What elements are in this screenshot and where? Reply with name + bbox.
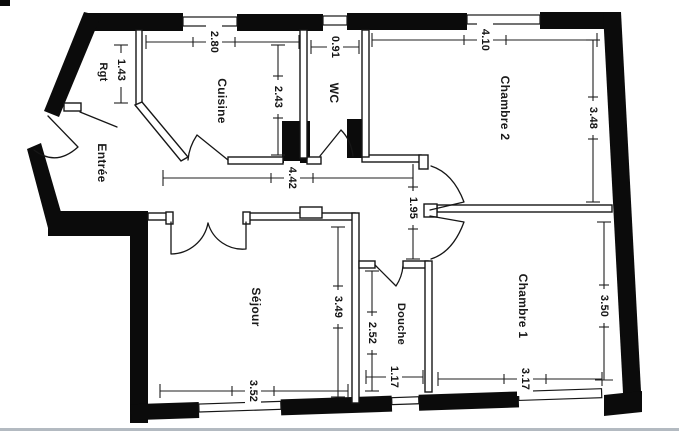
- wall-cuisine-diagonal: [135, 102, 188, 161]
- scan-edge-line: [0, 428, 679, 431]
- wall-corridor-top-1: [228, 157, 283, 164]
- dimension-label-3-50: 3.50: [598, 295, 610, 317]
- door-cuisine: [188, 135, 228, 160]
- dimension-label-3-49: 3.49: [332, 296, 344, 318]
- window-sejour: [199, 401, 281, 412]
- wall-wc-bottom-stub: [307, 157, 321, 164]
- room-label-chambre1: Chambre 1: [516, 274, 530, 339]
- wall-jamb-chambre2: [419, 155, 428, 169]
- wall-bottom-1: [131, 402, 199, 420]
- flue-block-wc: [347, 119, 362, 158]
- room-labels: Rgt Cuisine WC Chambre 2 Entrée Séjour D…: [95, 62, 530, 345]
- door-sejour-left: [171, 222, 208, 254]
- dimension-1-95: 1.95: [405, 165, 421, 259]
- wall-sejour-right: [352, 213, 359, 403]
- dimension-label-1-43: 1.43: [115, 59, 127, 81]
- door-sejour-right: [208, 222, 246, 249]
- dimension-label-4-42: 4.42: [286, 167, 298, 189]
- door-douche: [375, 265, 403, 286]
- wall-douche-top-left: [359, 261, 375, 268]
- dimension-label-3-17: 3.17: [519, 368, 531, 390]
- wall-rgt-bottom-stub: [64, 103, 81, 111]
- wall-douche-top-right: [403, 261, 428, 268]
- scan-corner-mark: [0, 0, 10, 6]
- window-douche: [392, 397, 419, 405]
- wall-rgt-cuisine: [136, 30, 142, 106]
- window-chambre2: [467, 15, 540, 24]
- room-label-sejour: Séjour: [249, 287, 263, 326]
- room-label-cuisine: Cuisine: [215, 78, 229, 123]
- wall-chambre2-chambre1: [437, 205, 612, 212]
- room-label-chambre2: Chambre 2: [498, 76, 512, 141]
- dimension-label-3-48: 3.48: [587, 107, 599, 129]
- wall-corridor-top-2: [362, 155, 421, 162]
- window-cuisine: [183, 17, 237, 26]
- doors: [34, 112, 464, 286]
- wall-bottom-right-foot: [604, 391, 642, 416]
- wall-entry-diagonal-upper: [44, 12, 101, 117]
- dimension-label-2-52: 2.52: [366, 322, 378, 344]
- wall-chambre1-left: [425, 261, 432, 392]
- floor-plan-drawing: 1.43 2.80 2.43 0.91: [0, 0, 679, 434]
- dimension-1-43: 1.43: [113, 45, 129, 103]
- jamb-french-door-left: [166, 212, 173, 224]
- door-rgt-leaf: [80, 112, 117, 127]
- room-label-rgt: Rgt: [97, 62, 109, 81]
- wall-left-sejour: [130, 211, 148, 423]
- dimension-0-91: 0.91: [311, 30, 359, 64]
- dimension-4-42: 4.42: [163, 161, 413, 195]
- room-label-wc: WC: [327, 83, 341, 104]
- window-wc: [323, 16, 347, 25]
- dimension-label-1-95: 1.95: [407, 197, 419, 219]
- wall-bottom-3: [419, 391, 519, 410]
- dimension-label-1-17: 1.17: [388, 366, 400, 388]
- dimension-1-17: 1.17: [366, 360, 423, 394]
- room-label-douche: Douche: [395, 303, 407, 345]
- dimension-label-2-80: 2.80: [208, 31, 220, 53]
- floor-plan-scan: 1.43 2.80 2.43 0.91: [0, 0, 679, 434]
- wall-top-3: [347, 13, 467, 30]
- dimension-label-2-43: 2.43: [272, 86, 284, 108]
- dimension-3-50: 3.50: [595, 222, 613, 380]
- wall-wc-right: [362, 30, 369, 157]
- dimension-3-48: 3.48: [585, 40, 601, 202]
- dimension-label-3-52: 3.52: [247, 380, 259, 402]
- wall-bottom-2: [281, 396, 392, 416]
- wall-wc-left: [300, 30, 307, 158]
- dimension-3-49: 3.49: [330, 227, 346, 397]
- dimension-label-4-10: 4.10: [479, 29, 491, 51]
- dimension-label-0-91: 0.91: [329, 36, 341, 58]
- door-chambre1: [430, 216, 464, 259]
- room-label-entree: Entrée: [95, 143, 109, 182]
- wall-top-2: [237, 14, 323, 31]
- radiator-sejour: [300, 207, 322, 218]
